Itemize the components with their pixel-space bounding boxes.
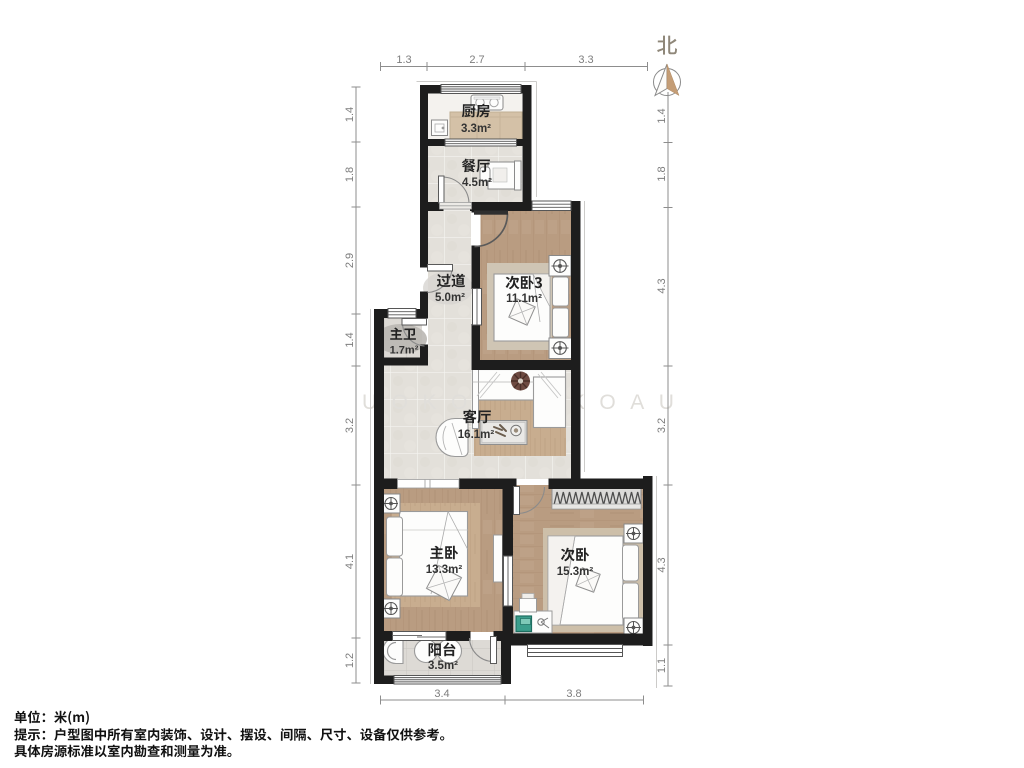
svg-text:1.8: 1.8 — [656, 166, 668, 181]
svg-text:2.7: 2.7 — [469, 54, 484, 66]
svg-text:1.8: 1.8 — [344, 167, 356, 182]
svg-text:16.1m²: 16.1m² — [458, 429, 495, 441]
svg-text:4.5m²: 4.5m² — [462, 177, 492, 189]
svg-text:3.2: 3.2 — [656, 418, 668, 433]
svg-text:11.1m²: 11.1m² — [506, 293, 542, 305]
svg-text:1.4: 1.4 — [344, 332, 356, 347]
svg-text:3.3: 3.3 — [578, 54, 593, 66]
svg-text:3.4: 3.4 — [434, 688, 449, 700]
svg-text:4.3: 4.3 — [656, 278, 668, 293]
svg-text:3.5m²: 3.5m² — [428, 660, 458, 672]
svg-text:1.2: 1.2 — [344, 653, 356, 668]
svg-text:4.1: 4.1 — [344, 554, 356, 569]
svg-text:2.9: 2.9 — [344, 253, 356, 268]
svg-text:5.0m²: 5.0m² — [435, 292, 465, 304]
svg-text:4.3: 4.3 — [656, 557, 668, 572]
svg-text:3.3m²: 3.3m² — [461, 123, 491, 135]
svg-text:1.7m²: 1.7m² — [390, 345, 419, 357]
svg-text:15.3m²: 15.3m² — [557, 566, 594, 578]
svg-text:1.1: 1.1 — [656, 658, 668, 673]
svg-text:1.4: 1.4 — [656, 108, 668, 123]
svg-text:1.4: 1.4 — [344, 107, 356, 122]
svg-text:13.3m²: 13.3m² — [426, 564, 463, 576]
svg-text:3.2: 3.2 — [344, 418, 356, 433]
svg-text:3.8: 3.8 — [566, 688, 581, 700]
svg-text:1.3: 1.3 — [396, 54, 411, 66]
